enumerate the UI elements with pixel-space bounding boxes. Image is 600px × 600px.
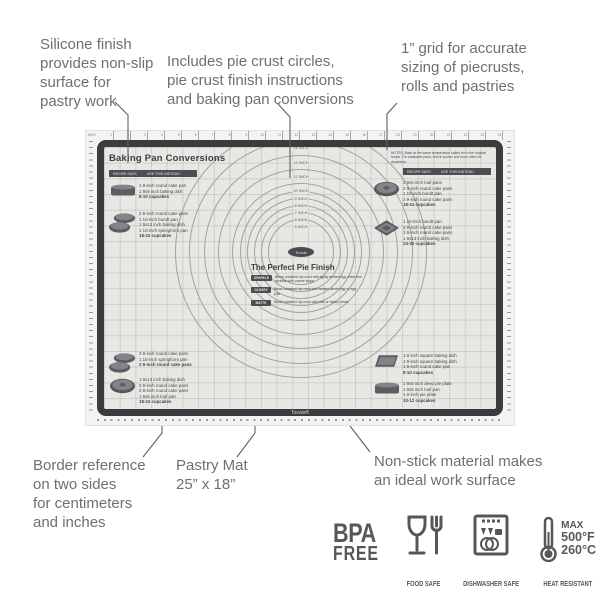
header-use-this-instead: USE THIS INSTEAD <box>441 170 474 174</box>
heat-max-text: MAX 500°F 260°C <box>561 521 596 558</box>
conversion-line: 8-10 cupcakes <box>403 370 457 376</box>
inch-tick-7: 7 <box>199 131 216 140</box>
pie-finish-row-glossy: GLOSSY Brush unbaked top crust with beat… <box>251 287 369 296</box>
inch-tick-11: 11 <box>266 131 283 140</box>
inch-tick-5: 5 <box>165 131 182 140</box>
rounds2-pan-icon <box>109 211 136 239</box>
conversion-table-header-right: RECIPE SAYS USE THIS INSTEAD <box>403 168 491 175</box>
inch-tick-16: 16 <box>351 131 368 140</box>
conversion-line: 1 8-inch square baking dish <box>403 353 457 359</box>
header-recipe-says: RECIPE SAYS <box>407 170 431 174</box>
mat-work-surface: 18 INCH16 INCH14 INCH12 INCH10 INCH9 INC… <box>104 147 496 409</box>
conversion-table-header-left: RECIPE SAYS USE THIS INSTEAD <box>109 170 197 177</box>
conversion-line: 2 8-inch round cake pans <box>139 351 192 357</box>
conversion-line: 2 8-inch round cake pans <box>139 211 188 217</box>
inch-tick-12: 12 <box>283 131 300 140</box>
square-pan-icon <box>373 353 400 375</box>
inch-ruler-label: INCH <box>88 133 96 137</box>
finish-instructions: Brush unbaked top crust with milk or hea… <box>274 300 362 304</box>
conversion-entry-e2: 2 8-inch round cake pans1 10-inch bundt … <box>109 211 227 239</box>
conversion-line: 1 9-inch round cake pan <box>403 364 457 370</box>
food-safe-caption: FOOD SAFE <box>407 581 440 588</box>
pie-circle-label: 12 INCH <box>292 174 309 179</box>
conversion-notes: NOTES: Bake at the same temperature call… <box>391 151 491 164</box>
tovolo-center-logo: Tovolo <box>288 247 314 257</box>
food-safe-icon <box>405 514 443 558</box>
inch-tick-1: 1 <box>97 131 114 140</box>
top-inch-ruler: 123456789101112131415161718192021222324 <box>97 131 503 140</box>
perfect-pie-finish-box: The Perfect Pie Finish SPARKLE Brush unb… <box>251 263 369 309</box>
conversion-line: 1 8-inch round cake pan <box>139 183 186 189</box>
product-infographic: Silicone finish provides non-slip surfac… <box>0 0 600 600</box>
finish-chip: SPARKLE <box>251 275 272 281</box>
pie-finish-title: The Perfect Pie Finish <box>251 263 369 272</box>
inch-tick-3: 3 <box>131 131 148 140</box>
pie-finish-row-sparkle: SPARKLE Brush unbaked top crust with lig… <box>251 275 369 284</box>
conversion-lines: 2 9x5 inch loaf pans2 8-inch round cake … <box>403 180 452 208</box>
conversion-line: 10-12 cupcakes <box>403 398 452 404</box>
inch-tick-6: 6 <box>182 131 199 140</box>
heat-resistant-caption: HEAT RESISTANT <box>544 581 593 588</box>
baking-pan-conversions-title: Baking Pan Conversions <box>109 153 225 164</box>
inch-tick-17: 17 <box>368 131 385 140</box>
conversion-line: 24-30 cupcakes <box>403 241 452 247</box>
free-line: FREE <box>333 546 379 564</box>
inch-tick-2: 2 <box>114 131 131 140</box>
pastry-mat: INCH 12345678910111213141516171819202122… <box>85 130 515 426</box>
conversion-line: 8-10 cupcakes <box>139 194 186 200</box>
conversion-line: 18-24 cupcakes <box>139 399 188 405</box>
bundt-pan-icon <box>109 377 136 405</box>
conversion-lines: 1 9x13 inch baking dish2 9-inch round ca… <box>139 377 188 405</box>
inch-tick-24: 24 <box>486 131 503 140</box>
inch-tick-22: 22 <box>452 131 469 140</box>
heat-resistant-row: MAX 500°F 260°C <box>540 516 596 562</box>
conversion-line: 2 8-inch round cake pans <box>403 230 452 236</box>
pie-circle-label: 10 INCH <box>292 188 309 193</box>
pie-finish-row-matte: MATTE Brush unbaked top crust with milk … <box>251 300 369 306</box>
conversion-entry-e8: 1 9x5 inch deep pie plate1 9x5 inch loaf… <box>373 381 491 403</box>
conversion-line: 18-24 cupcakes <box>403 202 452 208</box>
inch-tick-19: 19 <box>402 131 419 140</box>
pie-circle-label: 7 INCH <box>293 210 308 215</box>
inch-tick-8: 8 <box>215 131 232 140</box>
bottom-cm-ruler <box>97 419 503 424</box>
loaf-pan-icon <box>373 381 400 403</box>
finish-chip: MATTE <box>251 300 271 306</box>
callout-pastry-mat-size: Pastry Mat 25” x 18” <box>176 456 248 494</box>
rounds2-pan-icon <box>109 351 136 375</box>
certification-badges: BPA FREE FOOD SAFE <box>333 514 591 588</box>
inch-tick-15: 15 <box>334 131 351 140</box>
conversion-entry-e7: 1 8-inch square baking dish1 9-inch squa… <box>373 353 491 375</box>
conversion-lines: 1 10-inch bundt pan2 9-inch round cake p… <box>403 219 452 247</box>
conversion-line: 18-24 cupcakes <box>139 233 188 239</box>
conversion-lines: 2 8-inch round cake pans1 10-inch spring… <box>139 351 192 375</box>
header-recipe-says: RECIPE SAYS <box>113 172 137 176</box>
callout-silicone-finish: Silicone finish provides non-slip surfac… <box>40 35 153 111</box>
inch-tick-23: 23 <box>469 131 486 140</box>
pie-finish-rows: SPARKLE Brush unbaked top crust with lig… <box>251 275 369 306</box>
dishwasher-safe-icon <box>472 514 510 556</box>
heat-celsius: 260°C <box>561 544 596 557</box>
inch-tick-4: 4 <box>148 131 165 140</box>
inch-tick-18: 18 <box>385 131 402 140</box>
loaf-pan-icon <box>109 183 136 200</box>
bundt-pan-icon <box>373 180 400 208</box>
conversion-line: 1 9x13 inch baking dish <box>139 222 188 228</box>
food-safe-badge: FOOD SAFE <box>403 514 444 588</box>
heat-resistant-badge: MAX 500°F 260°C HEAT RESISTANT <box>538 514 598 588</box>
conversion-lines: 1 9x5 inch deep pie plate1 9x5 inch loaf… <box>403 381 452 403</box>
mat-border-frame: 18 INCH16 INCH14 INCH12 INCH10 INCH9 INC… <box>97 140 503 416</box>
conversion-line: 1 9x5 inch deep pie plate <box>403 381 452 387</box>
diamond-pan-icon <box>373 219 400 247</box>
conversion-line: 1 9x13 inch baking dish <box>139 377 188 383</box>
finish-chip: GLOSSY <box>251 287 271 293</box>
right-cm-ruler <box>507 141 511 415</box>
conversion-line: 2 9-inch round cake pans <box>139 362 192 368</box>
thermometer-icon <box>540 516 557 562</box>
conversion-entry-e4: 1 9x13 inch baking dish2 9-inch round ca… <box>109 377 227 405</box>
callout-nonstick: Non-stick material makes an ideal work s… <box>374 452 542 490</box>
pie-circle-label: 8 INCH <box>293 203 308 208</box>
dishwasher-safe-caption: DISHWASHER SAFE <box>463 581 519 588</box>
inch-tick-20: 20 <box>419 131 436 140</box>
pie-circle-label: 14 INCH <box>292 160 309 165</box>
conversion-line: 2 8-inch round cake pans <box>139 388 188 394</box>
conversion-entry-e5: 2 9x5 inch loaf pans2 8-inch round cake … <box>373 180 491 208</box>
inch-tick-14: 14 <box>317 131 334 140</box>
inch-tick-21: 21 <box>435 131 452 140</box>
conversion-lines: 1 8-inch square baking dish1 9-inch squa… <box>403 353 457 375</box>
conversion-entry-e1: 1 8-inch round cake pan1 9x9 inch baking… <box>109 183 227 200</box>
inch-tick-10: 10 <box>249 131 266 140</box>
pie-circle-label: 9 INCH <box>293 196 308 201</box>
conversion-entry-e6: 1 10-inch bundt pan2 9-inch round cake p… <box>373 219 491 247</box>
bpa-free-badge: BPA FREE <box>333 514 390 588</box>
pie-circle-label: 6 INCH <box>293 217 308 222</box>
finish-instructions: Brush unbaked top crust with lightly bea… <box>275 275 363 284</box>
finish-instructions: Brush unbaked top crust with beaten whol… <box>274 287 362 296</box>
callout-includes: Includes pie crust circles, pie crust fi… <box>167 52 354 109</box>
pie-circle-label: 5 INCH <box>293 224 308 229</box>
pie-circle-label: 16 INCH <box>292 147 309 150</box>
bpa-free-text: BPA FREE <box>333 522 379 563</box>
dishwasher-safe-badge: DISHWASHER SAFE <box>457 514 525 588</box>
conversion-entry-e3: 2 8-inch round cake pans1 10-inch spring… <box>109 351 227 375</box>
inch-tick-13: 13 <box>300 131 317 140</box>
conversion-lines: 2 8-inch round cake pans1 10-inch bundt … <box>139 211 188 239</box>
inch-tick-9: 9 <box>232 131 249 140</box>
left-cm-ruler <box>89 141 93 415</box>
callout-border-reference: Border reference on two sides for centim… <box>33 456 146 532</box>
header-use-this-instead: USE THIS INSTEAD <box>147 172 180 176</box>
conversion-lines: 1 8-inch round cake pan1 9x9 inch baking… <box>139 183 186 200</box>
tovolo-border-logo: Tovolo® <box>291 410 309 416</box>
callout-grid: 1” grid for accurate sizing of piecrusts… <box>401 39 527 96</box>
